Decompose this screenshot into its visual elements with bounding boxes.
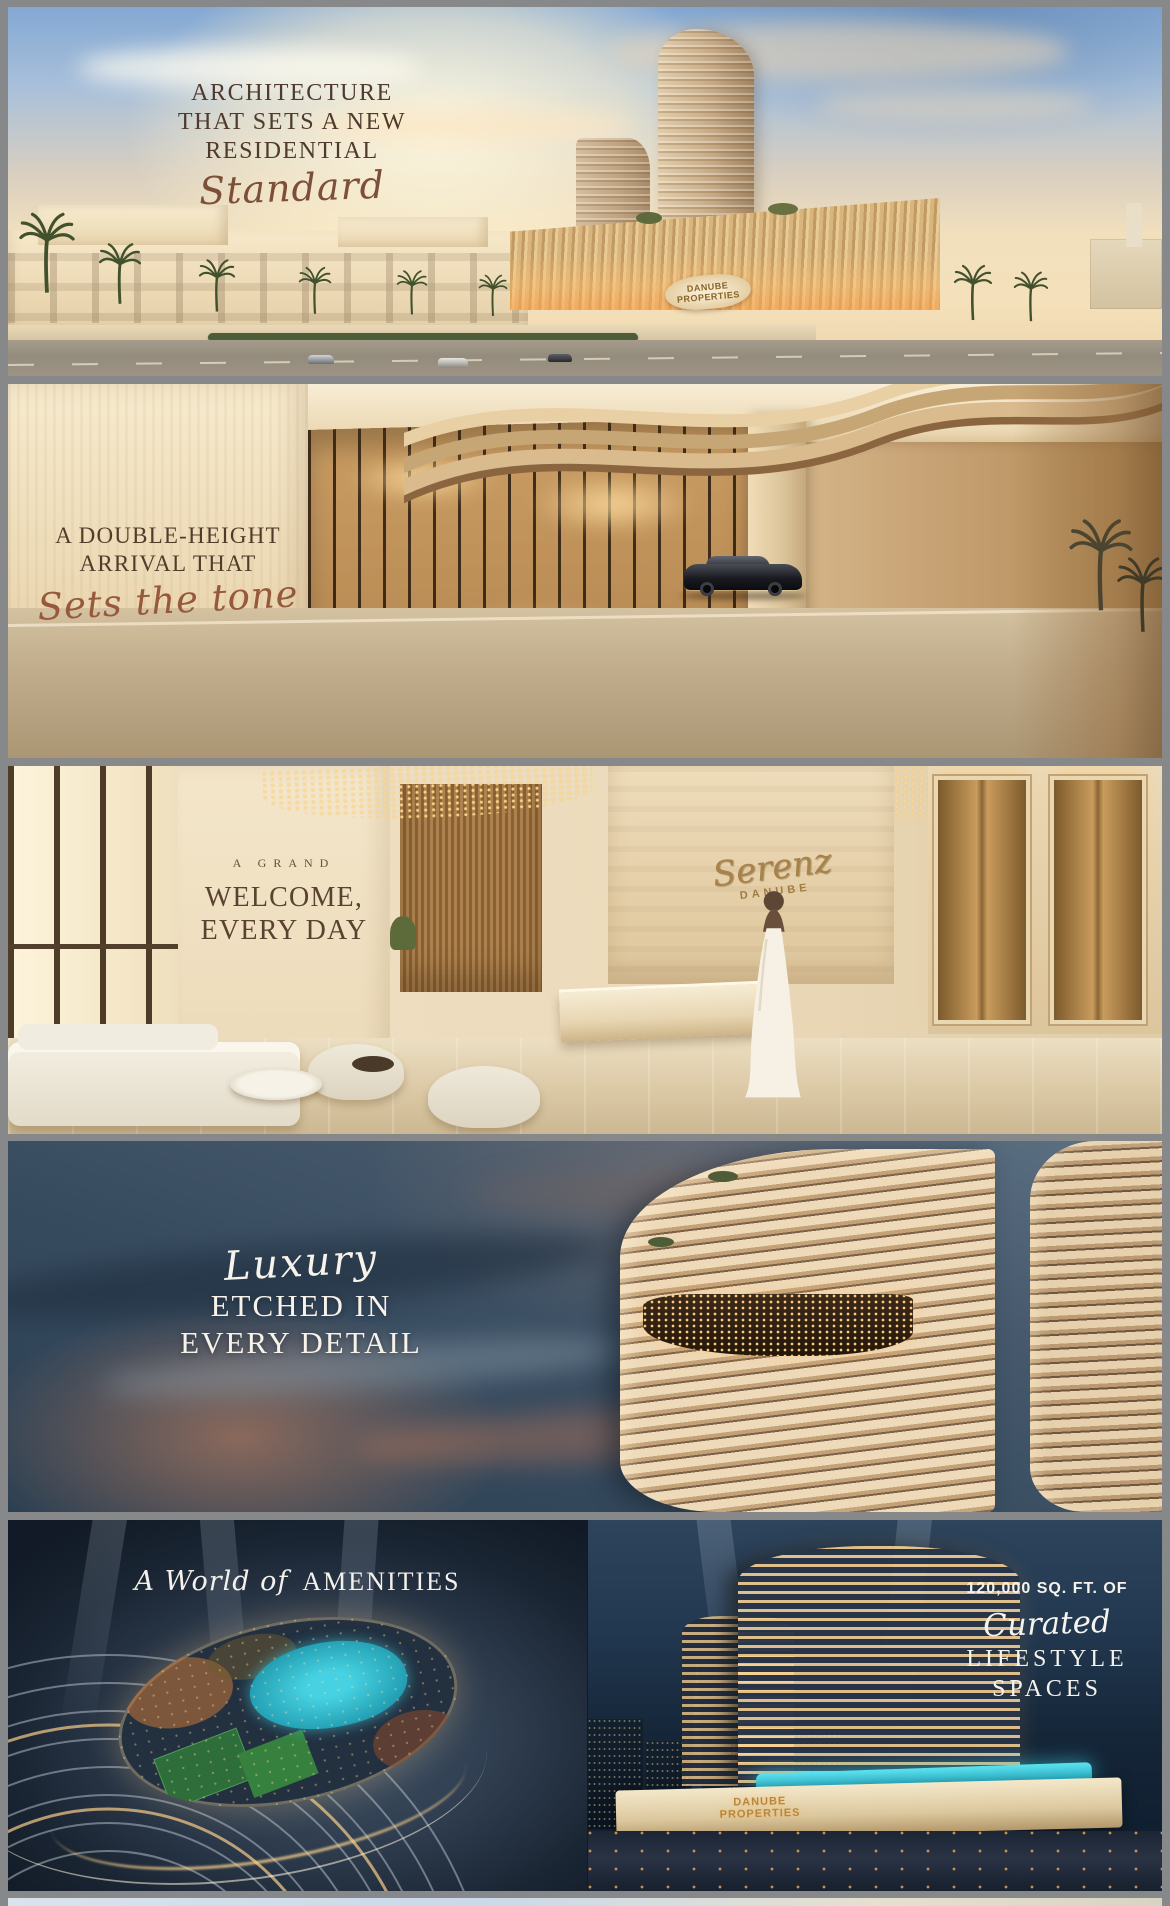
panel-luxury-detail: Luxury ETCHED IN EVERY DETAIL [8, 1141, 1162, 1512]
window-mullion [8, 944, 178, 949]
curated-script: Curated [941, 1600, 1152, 1647]
balcony-greenery [708, 1171, 738, 1182]
luxury-car [684, 552, 802, 596]
elevator-door [1054, 780, 1142, 1020]
car-wheel [700, 582, 714, 596]
palm-tree-icon [953, 257, 993, 327]
hero-heading-block: ARCHITECTURE THAT SETS A NEW RESIDENTIAL… [127, 79, 457, 210]
woman-in-white-dress [736, 884, 808, 1102]
welcome-eyebrow: A GRAND [184, 856, 384, 871]
reception-desk [559, 984, 766, 1043]
palm-tree-icon [478, 271, 508, 319]
palm-tree-icon [198, 255, 236, 315]
elevator-bank [928, 766, 1162, 1034]
elevator-door [938, 780, 1026, 1020]
brochure-page: DANUBE PROPERTIES ARCHITECTURE THAT SETS… [0, 0, 1170, 1906]
balcony-greenery [648, 1237, 674, 1247]
cloud [816, 88, 1093, 121]
arrival-script-line: Sets the tone [27, 571, 309, 632]
hero-script-line: Standard [126, 160, 457, 215]
second-tower-edge [1030, 1141, 1162, 1512]
sofa-back [18, 1024, 218, 1050]
street [8, 340, 1162, 376]
hero-heading-line: THAT SETS A NEW [127, 108, 457, 137]
lane-marking [8, 352, 1162, 366]
palm-tree-icon [1013, 265, 1049, 327]
luxury-heading-block: Luxury ETCHED IN EVERY DETAIL [136, 1239, 466, 1361]
lifestyle-heading-line: LIFESTYLE [942, 1644, 1152, 1674]
curved-balcony-tower [620, 1149, 995, 1512]
amenity-terrace-lights [643, 1294, 913, 1356]
sqft-kicker: 120,000 SQ. FT. OF [942, 1580, 1152, 1598]
amenities-aerial-image: A World of AMENITIES [8, 1520, 587, 1891]
building-sign: DANUBE PROPERTIES [700, 1794, 821, 1821]
panel-arrival: A DOUBLE-HEIGHT ARRIVAL THAT Sets the to… [8, 384, 1162, 758]
villa-building [338, 217, 488, 247]
amenities-heading: AMENITIES [302, 1567, 460, 1596]
hero-heading-line: ARCHITECTURE [127, 79, 457, 108]
palm-tree-icon [396, 267, 428, 317]
lounge-chair [308, 1044, 404, 1100]
panel-amenities-lifestyle: A World of AMENITIES DANUBE PROPERTIES [8, 1520, 1162, 1891]
welcome-heading-line: WELCOME, [184, 881, 384, 914]
panel-lobby-welcome: Serenz DANUBE A GRAND WELCOME, EVERY DAY [8, 766, 1162, 1134]
car [308, 355, 334, 364]
street-night [588, 1831, 1162, 1891]
night-tower-image: DANUBE PROPERTIES 120,000 SQ. FT. OF Cur… [588, 1520, 1162, 1891]
plant [390, 916, 416, 950]
car [548, 354, 572, 362]
palm-tree-icon [298, 263, 332, 317]
distant-tower [1126, 203, 1142, 247]
side-table [352, 1056, 394, 1072]
building-sign-line: PROPERTIES [700, 1806, 820, 1821]
palm-tree-icon [98, 239, 142, 307]
palm-tree-icon [1116, 544, 1162, 644]
serenz-tower [658, 29, 754, 241]
distant-building [1090, 239, 1162, 309]
panel-architecture-hero: DANUBE PROPERTIES ARCHITECTURE THAT SETS… [8, 7, 1162, 376]
villa-windows [8, 253, 528, 323]
driveway [8, 608, 1162, 758]
amenities-script: A World of [134, 1566, 288, 1597]
coffee-table [230, 1068, 322, 1100]
arrival-heading-block: A DOUBLE-HEIGHT ARRIVAL THAT Sets the to… [28, 522, 308, 624]
rooftop-palm [768, 203, 798, 215]
lifestyle-heading-line: SPACES [942, 1674, 1152, 1704]
lifestyle-heading-block: 120,000 SQ. FT. OF Curated LIFESTYLE SPA… [942, 1580, 1152, 1704]
welcome-heading-block: A GRAND WELCOME, EVERY DAY [184, 856, 384, 947]
car-shadow [680, 592, 806, 600]
luxury-script-line: Luxury [135, 1230, 467, 1295]
panel-next-section-sliver [8, 1898, 1162, 1906]
arrival-heading-line: A DOUBLE-HEIGHT [28, 522, 308, 550]
rooftop-palm [636, 212, 662, 224]
car [438, 358, 468, 368]
welcome-heading-line: EVERY DAY [184, 914, 384, 947]
lounge-chair [428, 1066, 540, 1128]
amenities-heading-block: A World of AMENITIES [8, 1566, 587, 1597]
car-wheel [768, 582, 782, 596]
luxury-heading-line: EVERY DETAIL [136, 1324, 466, 1361]
palm-tree-icon [18, 207, 76, 297]
